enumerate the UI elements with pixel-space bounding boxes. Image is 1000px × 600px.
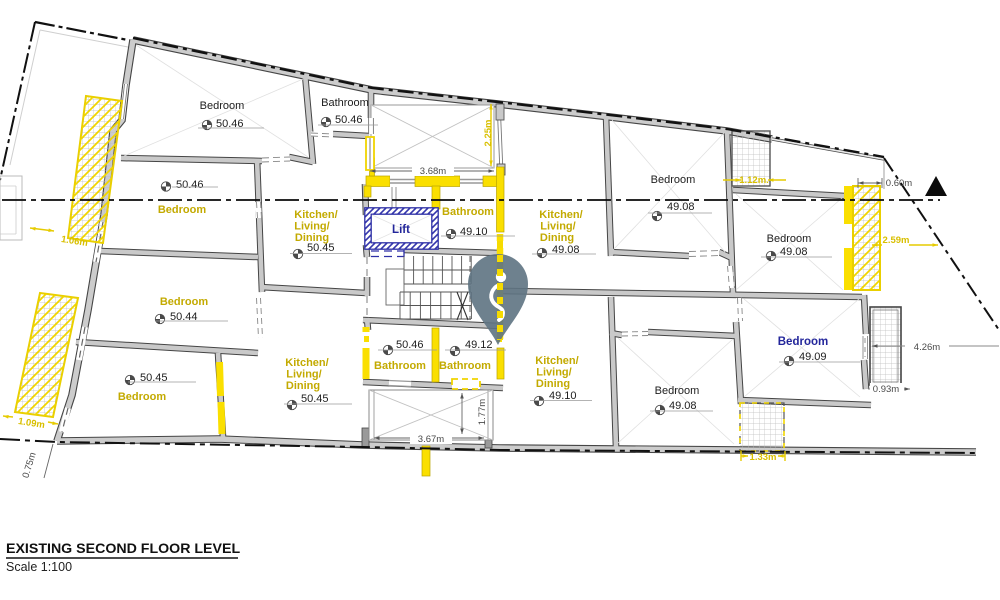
svg-text:50.46: 50.46: [396, 339, 424, 351]
svg-text:Living/: Living/: [286, 369, 321, 381]
svg-text:Living/: Living/: [536, 367, 571, 379]
svg-text:Bedroom: Bedroom: [767, 233, 812, 245]
svg-text:3.68m: 3.68m: [420, 166, 446, 177]
svg-text:50.46: 50.46: [335, 114, 363, 126]
svg-text:Scale 1:100: Scale 1:100: [6, 560, 72, 574]
svg-text:1.12m.: 1.12m.: [739, 175, 769, 186]
svg-text:50.46: 50.46: [176, 179, 204, 191]
svg-text:3.67m: 3.67m: [418, 434, 444, 445]
svg-text:49.08: 49.08: [669, 400, 697, 412]
svg-text:Bedroom: Bedroom: [160, 296, 209, 308]
svg-text:Bedroom: Bedroom: [158, 204, 207, 216]
svg-text:1.33m: 1.33m: [750, 452, 777, 463]
svg-text:Bathroom: Bathroom: [321, 97, 369, 109]
svg-text:49.08: 49.08: [780, 246, 808, 258]
svg-text:Bedroom: Bedroom: [778, 336, 828, 348]
svg-text:Living/: Living/: [540, 221, 575, 233]
svg-text:Lift: Lift: [392, 224, 410, 236]
svg-text:Kitchen/: Kitchen/: [294, 209, 337, 221]
svg-text:Bedroom: Bedroom: [651, 174, 696, 186]
svg-text:49.08: 49.08: [667, 201, 695, 213]
svg-text:Bedroom: Bedroom: [118, 391, 167, 403]
svg-text:1.77m: 1.77m: [477, 399, 488, 425]
svg-text:0.93m: 0.93m: [873, 384, 899, 395]
svg-text:49.09: 49.09: [799, 351, 827, 363]
svg-text:0.60m: 0.60m: [886, 178, 912, 189]
svg-text:Bathroom: Bathroom: [374, 360, 426, 372]
svg-text:Bedroom: Bedroom: [200, 100, 245, 112]
svg-text:Bathroom: Bathroom: [439, 360, 491, 372]
svg-text:Kitchen/: Kitchen/: [539, 209, 582, 221]
svg-text:50.45: 50.45: [307, 242, 335, 254]
svg-text:EXISTING SECOND FLOOR LEVEL: EXISTING SECOND FLOOR LEVEL: [6, 541, 240, 557]
svg-text:Dining: Dining: [536, 378, 570, 390]
svg-text:2.25m: 2.25m: [483, 120, 494, 147]
svg-text:Dining: Dining: [286, 380, 320, 392]
svg-text:2.59m: 2.59m: [883, 235, 910, 246]
svg-text:Bathroom: Bathroom: [442, 206, 494, 218]
svg-text:Dining: Dining: [540, 232, 574, 244]
svg-text:Bedroom: Bedroom: [655, 385, 700, 397]
svg-text:Living/: Living/: [294, 221, 329, 233]
svg-text:50.45: 50.45: [301, 393, 329, 405]
svg-text:Kitchen/: Kitchen/: [285, 357, 328, 369]
svg-text:Kitchen/: Kitchen/: [535, 355, 578, 367]
svg-text:49.12: 49.12: [465, 339, 493, 351]
svg-text:4.26m: 4.26m: [914, 342, 940, 353]
